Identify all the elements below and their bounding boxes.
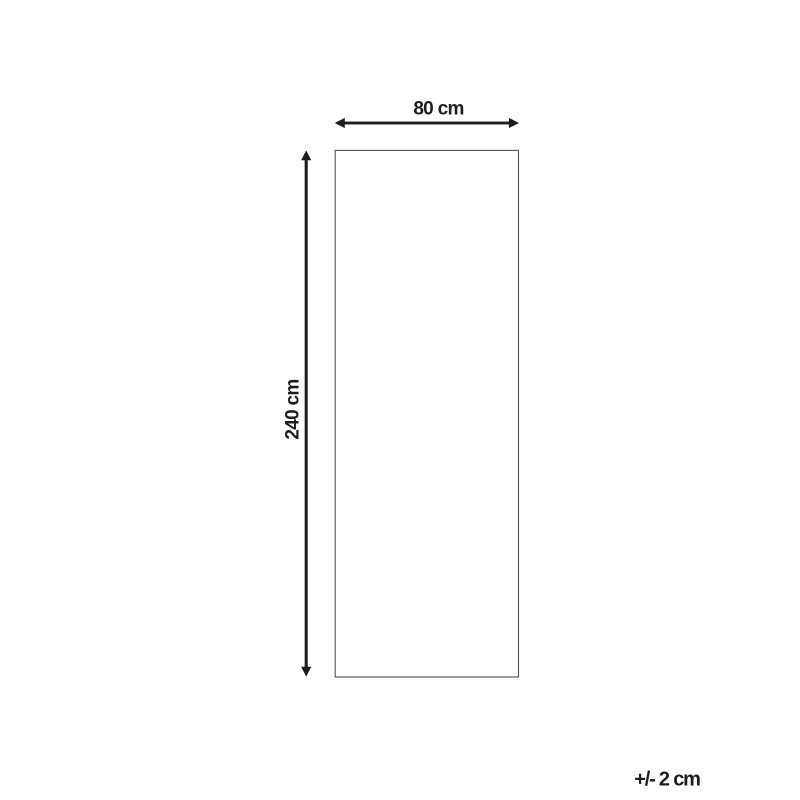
svg-text:+/- 2 cm: +/- 2 cm xyxy=(634,768,700,790)
svg-text:240 cm: 240 cm xyxy=(283,379,304,439)
svg-text:80 cm: 80 cm xyxy=(413,99,463,120)
